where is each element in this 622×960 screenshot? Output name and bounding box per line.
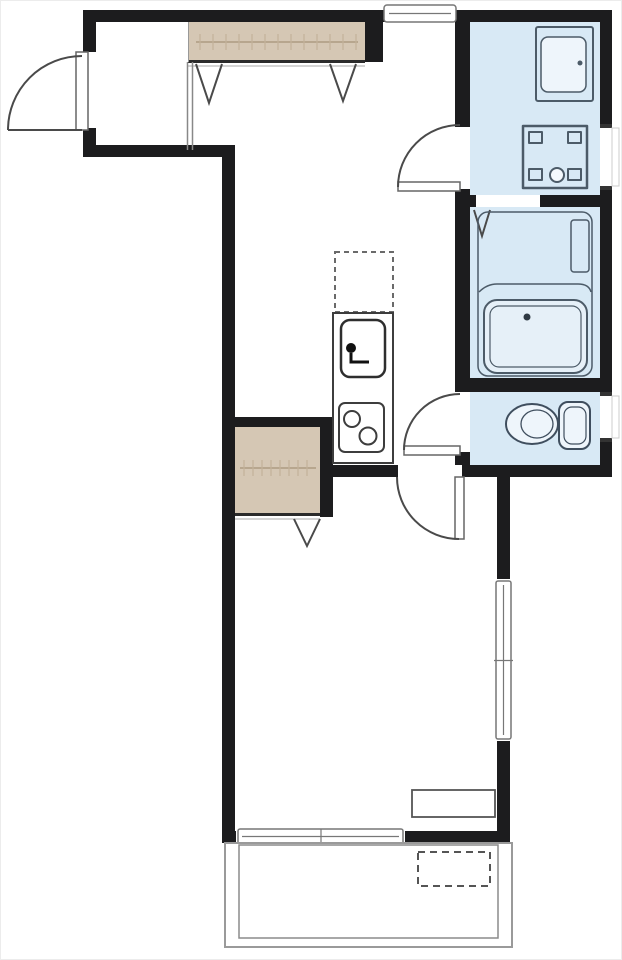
wall-main-room-top <box>333 465 612 477</box>
burner <box>344 411 360 427</box>
window-top <box>384 5 456 22</box>
window-sill <box>612 128 619 186</box>
main-room-door-leaf <box>455 477 464 539</box>
opening-bathroom <box>476 195 540 207</box>
toilet-door-leaf <box>404 446 460 455</box>
wall-entry-bottom <box>83 145 235 157</box>
balcony <box>225 843 512 947</box>
wall-closet-upper-right <box>365 10 383 62</box>
opening-washroom <box>455 127 470 189</box>
wall-bathroom-toilet-divider <box>470 378 612 392</box>
window-sill <box>612 396 619 438</box>
floor-plan-drawing <box>0 0 622 960</box>
window-main-room-right <box>494 579 513 741</box>
window-toilet-right <box>600 392 619 442</box>
opening-main-room <box>398 465 462 477</box>
burner <box>360 428 377 445</box>
window-cap <box>600 124 612 128</box>
bathtub-drain <box>524 314 531 321</box>
window-washroom-right <box>600 124 619 190</box>
window-cap <box>600 392 612 396</box>
kitchen <box>333 252 393 463</box>
window-washroom-glass <box>600 124 612 190</box>
window-cap <box>600 186 612 190</box>
entrance-door-leaf <box>76 52 88 130</box>
washroom-door-leaf <box>398 182 460 191</box>
wall-west <box>222 145 235 843</box>
balcony-outer <box>225 843 512 947</box>
stove-outline <box>339 403 384 452</box>
vanity-faucet-dot <box>578 61 583 66</box>
wall-closet-lower-right <box>320 417 333 517</box>
opening-toilet <box>455 392 470 452</box>
pan-drain <box>550 168 564 182</box>
window-toilet-glass <box>600 392 612 442</box>
refrigerator-space <box>335 252 393 312</box>
floor-plan <box>0 0 622 960</box>
bathtub-outer <box>484 300 587 373</box>
storage-counter <box>412 790 495 817</box>
bathtub <box>484 300 587 373</box>
window-cap <box>600 438 612 442</box>
faucet-dot <box>346 343 356 353</box>
wall-niche-top <box>222 417 333 427</box>
gas-stove <box>339 403 384 452</box>
wall-top <box>83 10 612 22</box>
